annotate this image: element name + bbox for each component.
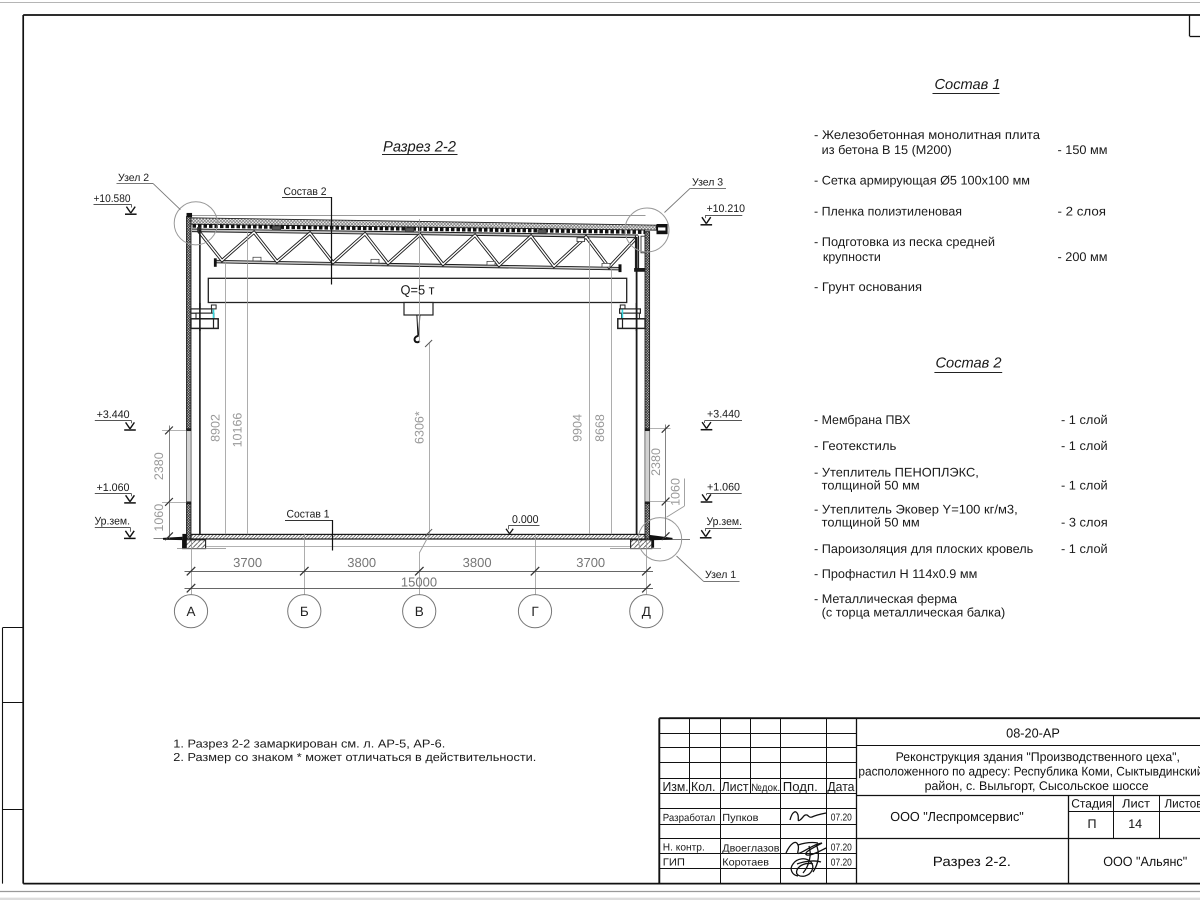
svg-text:- Грунт основания: - Грунт основания	[814, 280, 922, 294]
svg-text:07.20: 07.20	[831, 842, 852, 853]
svg-text:Ур.зем.: Ур.зем.	[707, 516, 743, 528]
svg-text:из бетона В 15 (М200): из бетона В 15 (М200)	[822, 143, 952, 157]
svg-text:- Сетка армирующая Ø5 100х100: - Сетка армирующая Ø5 100х100 мм	[814, 174, 1030, 188]
svg-text:№док.: №док.	[751, 782, 780, 794]
svg-text:- 150 мм: - 150 мм	[1058, 143, 1108, 157]
svg-text:2. Размер со знаком * может от: 2. Размер со знаком * может отличаться в…	[173, 752, 536, 764]
svg-text:- Геотекстиль: - Геотекстиль	[814, 439, 896, 453]
svg-text:Лист: Лист	[1122, 797, 1151, 811]
svg-text:+3.440: +3.440	[97, 409, 130, 421]
svg-text:Состав 2: Состав 2	[284, 186, 327, 198]
svg-text:- Металлическая ферма: - Металлическая ферма	[814, 592, 957, 606]
svg-text:крупности: крупности	[823, 250, 881, 264]
svg-text:Разработал: Разработал	[663, 813, 716, 824]
svg-text:- 1 слой: - 1 слой	[1061, 413, 1108, 427]
svg-text:8902: 8902	[208, 414, 222, 442]
svg-text:2380: 2380	[649, 448, 663, 476]
svg-text:- Утеплитель ПЕНОПЛЭКС,: - Утеплитель ПЕНОПЛЭКС,	[814, 466, 979, 480]
svg-text:07.20: 07.20	[831, 812, 852, 823]
svg-text:3700: 3700	[576, 555, 605, 570]
svg-text:- Железобетонная монолитная п: - Железобетонная монолитная плита	[814, 128, 1040, 142]
svg-text:- 1 слой: - 1 слой	[1061, 479, 1108, 493]
svg-text:А: А	[186, 604, 195, 619]
svg-text:Стадия: Стадия	[1071, 797, 1112, 811]
svg-text:Листов: Листов	[1165, 797, 1200, 811]
svg-text:3800: 3800	[463, 555, 492, 570]
svg-text:(с торца металлическая балка): (с торца металлическая балка)	[822, 606, 1006, 620]
svg-text:Пупков: Пупков	[722, 813, 759, 824]
svg-text:толщиной 50 мм: толщиной 50 мм	[822, 516, 920, 530]
svg-text:Разрез 2-2: Разрез 2-2	[383, 139, 457, 156]
svg-text:- Пленка полиэтиленовая: - Пленка полиэтиленовая	[814, 205, 962, 219]
svg-text:07.20: 07.20	[831, 857, 852, 868]
svg-text:В: В	[415, 604, 424, 619]
svg-text:Г: Г	[531, 604, 539, 619]
svg-text:3700: 3700	[233, 555, 262, 570]
svg-text:- 3 слоя: - 3 слоя	[1061, 516, 1108, 530]
svg-text:+1.060: +1.060	[707, 482, 740, 494]
svg-text:- Пароизоляция для плоских кро: - Пароизоляция для плоских кровель	[814, 542, 1033, 556]
svg-text:район, с. Выльгорт, Сысольское: район, с. Выльгорт, Сысольское шоссе	[925, 779, 1149, 793]
svg-text:+1.060: +1.060	[97, 482, 130, 494]
svg-text:+3.440: +3.440	[707, 409, 740, 421]
svg-text:Изм.: Изм.	[663, 779, 689, 794]
svg-text:08-20-АР: 08-20-АР	[1006, 726, 1060, 741]
svg-text:расположенного по адресу: Респ: расположенного по адресу: Республика Ком…	[858, 765, 1200, 779]
svg-text:П: П	[1088, 817, 1097, 831]
svg-text:Коротаев: Коротаев	[722, 858, 769, 869]
svg-text:Б: Б	[300, 604, 309, 619]
svg-text:Кол.: Кол.	[691, 779, 716, 794]
svg-text:2380: 2380	[152, 452, 166, 480]
svg-text:Лист: Лист	[722, 779, 749, 794]
svg-text:+10.210: +10.210	[707, 203, 746, 215]
svg-text:Состав 1: Состав 1	[287, 509, 330, 521]
svg-text:Дата: Дата	[827, 779, 855, 794]
svg-text:Узел 2: Узел 2	[118, 172, 149, 184]
svg-text:1060: 1060	[152, 504, 166, 532]
svg-text:6306*: 6306*	[413, 411, 427, 444]
svg-text:- Мембрана ПВХ: - Мембрана ПВХ	[814, 413, 911, 427]
svg-text:8668: 8668	[593, 414, 607, 442]
svg-text:ООО "Леспромсервис": ООО "Леспромсервис"	[890, 809, 1024, 824]
svg-text:Узел 3: Узел 3	[692, 177, 723, 189]
svg-text:- Утеплитель Эковер Y=100 кг/м: - Утеплитель Эковер Y=100 кг/м3,	[814, 503, 1018, 517]
svg-text:- 1 слой: - 1 слой	[1061, 439, 1108, 453]
svg-text:Разрез 2-2.: Разрез 2-2.	[933, 854, 1011, 869]
svg-text:Д: Д	[642, 604, 651, 619]
svg-text:Двоеглазов: Двоеглазов	[722, 843, 780, 854]
svg-text:- 200 мм: - 200 мм	[1058, 250, 1108, 264]
svg-text:Q=5 т: Q=5 т	[401, 282, 435, 297]
svg-text:- Подготовка из песка средней: - Подготовка из песка средней	[814, 235, 995, 249]
svg-text:15000: 15000	[401, 575, 437, 590]
svg-text:Н. контр.: Н. контр.	[663, 843, 705, 854]
svg-text:ГИП: ГИП	[663, 858, 685, 869]
svg-text:ООО "Альянс": ООО "Альянс"	[1103, 854, 1187, 869]
svg-text:3800: 3800	[347, 555, 376, 570]
svg-text:+10.580: +10.580	[94, 193, 131, 205]
svg-text:толщиной 50 мм: толщиной 50 мм	[822, 479, 920, 493]
svg-text:- 2 слоя: - 2 слоя	[1058, 205, 1107, 219]
svg-text:14: 14	[1128, 817, 1142, 831]
svg-text:Узел 1: Узел 1	[705, 569, 736, 581]
svg-text:0.000: 0.000	[512, 514, 539, 526]
svg-text:Ур.зем.: Ур.зем.	[95, 516, 131, 528]
svg-text:1060: 1060	[668, 478, 682, 506]
svg-text:Реконструкция здания "Производ: Реконструкция здания "Производственного …	[896, 750, 1180, 764]
svg-text:- Профнастил Н 114х0.9 мм: - Профнастил Н 114х0.9 мм	[814, 567, 977, 581]
svg-text:9904: 9904	[571, 414, 585, 442]
svg-text:- 1 слой: - 1 слой	[1061, 542, 1108, 556]
svg-text:Подп.: Подп.	[783, 779, 818, 794]
svg-text:10166: 10166	[231, 413, 245, 448]
svg-text:Состав 2: Состав 2	[936, 356, 1002, 372]
svg-text:1. Разрез 2-2 замаркирован см.: 1. Разрез 2-2 замаркирован см. л. АР-5, …	[173, 739, 445, 751]
svg-text:Состав 1: Состав 1	[935, 77, 1001, 93]
